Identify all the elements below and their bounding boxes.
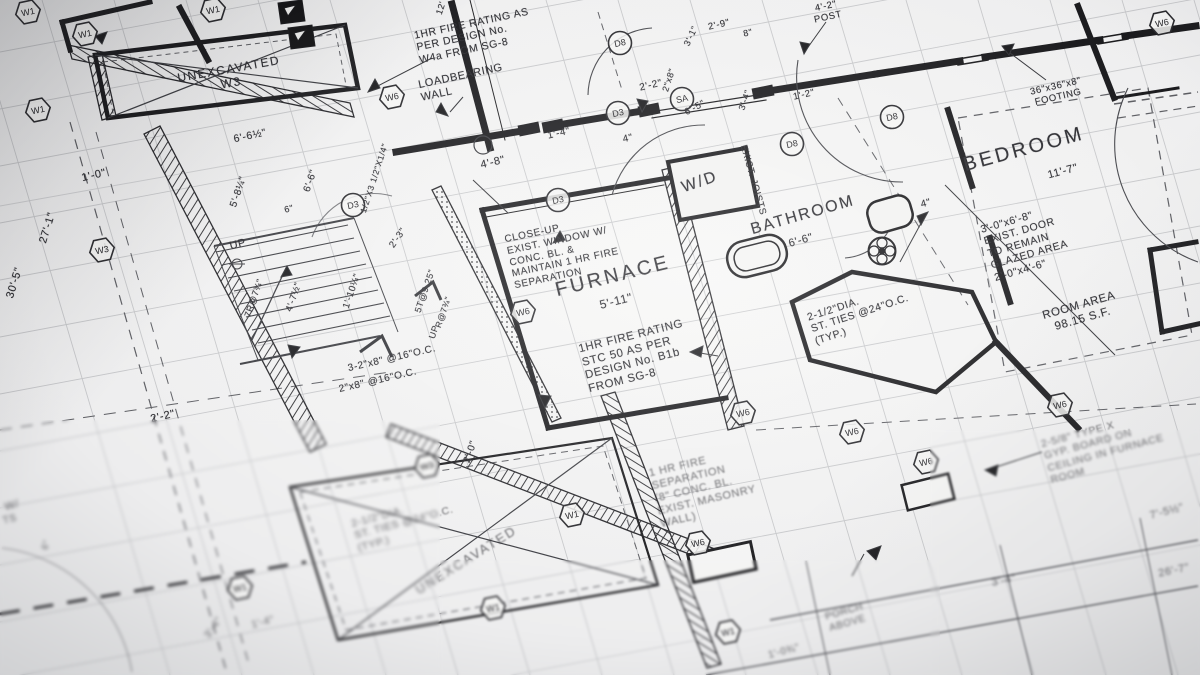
dim-4-7-half: 4'-7½" — [284, 281, 305, 313]
dim-steel-angle: 1/2"X3 1/2"X1/4" — [358, 142, 390, 214]
note-exist-door: 3'-0"x6'-8"EXIST. DOORTO REMAINGLAZED AR… — [979, 202, 1073, 283]
dim-6-5: 6'-5" — [683, 98, 708, 118]
dim-2-9: 2'-9" — [707, 17, 731, 33]
note-room-area: ROOM AREA98.15 S.F. — [1041, 290, 1121, 337]
dim-26-7: 26'-7" — [1157, 561, 1191, 580]
dim-5t: 5T@9.25" — [413, 268, 438, 314]
dim-1-0-three-quarter: 1'-0¾" — [767, 642, 801, 662]
dim-5-8-quarter: 5'-8¼" — [228, 175, 250, 209]
blueprint-photo: W1W1W1W1W3W6W6W3W1W1W6W1W6W1W6W6W6W6D8D3… — [0, 0, 1200, 675]
dim-1-4-top: 1'-4" — [547, 126, 572, 143]
note-footing: 36"x36"x8"FOOTING — [1029, 75, 1085, 109]
dim-6-6-half: 6'-6½" — [232, 126, 267, 145]
note-st-ties-right: 2-1/2"DIA.ST. TIES @24"O.C.(TYP.) — [806, 281, 914, 348]
labels-layer: UNEXCAVATEDW36'-6½"1'-0"27'-1"30'-5"6'-6… — [0, 0, 1200, 675]
note-fire-rating-w4a: 1HR FIRE RATING ASPER DESIGN No.W4a FROM… — [413, 6, 535, 67]
dim-6-bl: 6" — [39, 539, 52, 551]
dim-1-0: 1'-0" — [80, 167, 107, 185]
dim-12: 12' — [434, 0, 448, 16]
dim-3-4-top: 3'-4" — [737, 88, 754, 111]
dim-1-10-quarter: 1'-10¼" — [341, 272, 363, 310]
dim-3-4-bottom: 3'-4" — [990, 572, 1017, 590]
dim-7r: 7R@7¾" — [242, 277, 265, 318]
dim-bedroom: 11'-7" — [1046, 162, 1079, 183]
room-unexcavated-top: UNEXCAVATEDW3 — [176, 53, 283, 99]
note-st-ties-left: 2-1/2"DIA.ST. TIES @24"O.C.(TYP.) — [350, 492, 458, 554]
dim-2-2-left: 2'-2" — [149, 408, 176, 426]
note-post: 4'-2"POST — [811, 0, 843, 26]
dim-1-2: 1'-2" — [792, 87, 816, 103]
dim-3-1: 3'-1" — [682, 24, 700, 47]
note-beam: 3-2"x8" @16"O.C. — [347, 343, 437, 375]
dim-7-5-half: 7'-5½" — [1149, 501, 1186, 523]
dim-2-3: 2'-3" — [387, 226, 409, 250]
dim-4-bath: 4" — [919, 197, 932, 211]
dim-4-top: 4" — [622, 132, 635, 146]
label-exist-joists: EXIST. JOISTS — [738, 143, 769, 216]
dim-r-7: R@7¾" — [433, 295, 453, 329]
label-up: UP — [228, 237, 247, 254]
dim-bathroom: 6'-6" — [787, 231, 815, 250]
edge-label-w: W/ — [3, 498, 20, 514]
dim-furnace: 5'-11" — [598, 290, 634, 312]
dim-1-4-bottom: 1'-4" — [250, 614, 275, 631]
note-gyp-board: 2-5/8" TYPE XGYP. BOARD ONCEILING IN FUR… — [1040, 408, 1169, 487]
dim-6-6-vert: 6'-6" — [302, 168, 321, 194]
note-loadbearing: LOADBEARINGWALL — [417, 61, 507, 104]
dim-6in: 6" — [283, 203, 295, 216]
note-fire-separation: 1 HR FIRESEPARATION(8" CONC. BL.EXIST. M… — [648, 445, 761, 531]
dim-27-1: 27'-1" — [37, 211, 59, 245]
dim-2x8: 2"x8" — [660, 67, 677, 93]
dim-30-5: 30'-5" — [4, 266, 26, 300]
room-wd: W/D — [679, 168, 720, 198]
dim-2-2-top: 2'-2" — [639, 78, 664, 95]
dim-4-8: 4'-8" — [479, 154, 506, 172]
dim-3-4-bl: 3'-4" — [203, 615, 226, 641]
dim-2-0: 2'-0" — [462, 439, 481, 465]
edge-label-ts: TS — [2, 513, 18, 528]
dim-8in: 8" — [742, 27, 754, 39]
note-porch-above: PORCHABOVE — [824, 601, 868, 634]
note-fire-rating-b1b: 1HR FIRE RATINGSTC 50 AS PERDESIGN No. B… — [577, 318, 694, 397]
